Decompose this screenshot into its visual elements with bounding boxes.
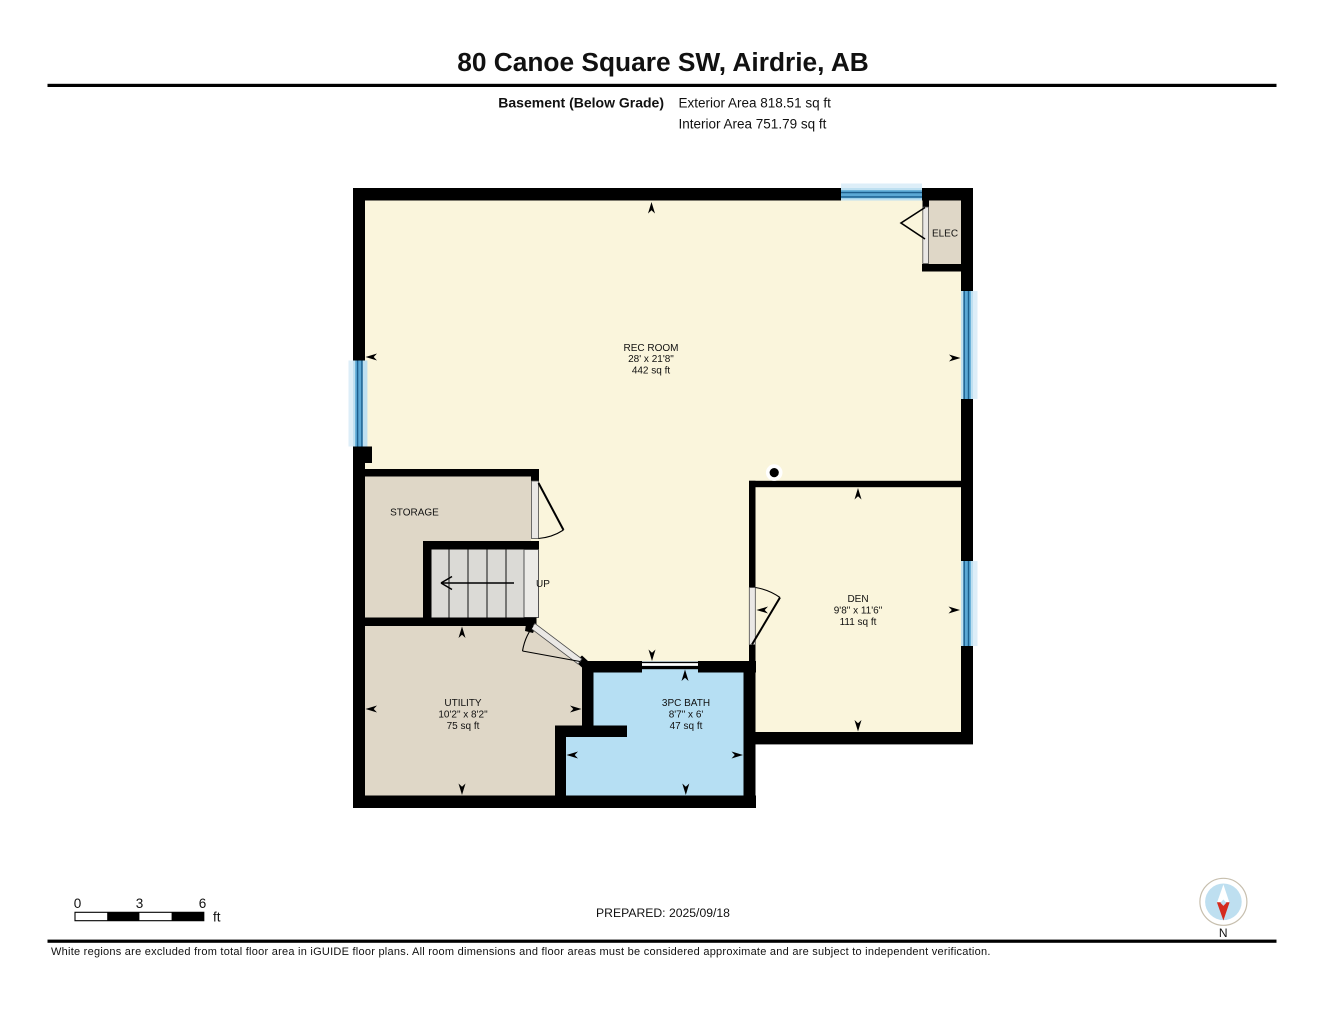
svg-text:ft: ft xyxy=(213,910,221,925)
svg-text:8'7" x 6': 8'7" x 6' xyxy=(669,709,704,720)
svg-text:Exterior Area 818.51 sq ft: Exterior Area 818.51 sq ft xyxy=(679,96,832,111)
svg-text:80 Canoe Square SW, Airdrie, A: 80 Canoe Square SW, Airdrie, AB xyxy=(457,47,869,77)
svg-text:UP: UP xyxy=(536,579,550,590)
svg-text:111 sq ft: 111 sq ft xyxy=(840,617,877,628)
svg-text:10'2" x 8'2": 10'2" x 8'2" xyxy=(438,709,488,720)
svg-text:DEN: DEN xyxy=(847,594,868,605)
svg-text:3: 3 xyxy=(136,896,144,911)
svg-text:UTILITY: UTILITY xyxy=(444,698,482,709)
svg-text:75 sq ft: 75 sq ft xyxy=(447,721,480,732)
svg-text:STORAGE: STORAGE xyxy=(390,508,439,519)
svg-text:442 sq ft: 442 sq ft xyxy=(632,366,671,377)
svg-text:47 sq ft: 47 sq ft xyxy=(670,721,703,732)
svg-text:REC ROOM: REC ROOM xyxy=(624,343,679,354)
svg-text:ELEC: ELEC xyxy=(932,229,958,240)
svg-text:N: N xyxy=(1219,926,1228,940)
svg-text:PREPARED: 2025/09/18: PREPARED: 2025/09/18 xyxy=(596,906,730,920)
svg-text:White regions are excluded fro: White regions are excluded from total fl… xyxy=(51,946,991,958)
svg-text:Interior Area 751.79 sq ft: Interior Area 751.79 sq ft xyxy=(679,117,827,132)
svg-text:Basement (Below Grade): Basement (Below Grade) xyxy=(498,95,664,111)
svg-text:9'8" x 11'6": 9'8" x 11'6" xyxy=(834,605,883,616)
svg-text:28' x 21'8": 28' x 21'8" xyxy=(628,354,674,365)
svg-text:6: 6 xyxy=(199,896,207,911)
svg-text:3PC BATH: 3PC BATH xyxy=(662,698,710,709)
svg-text:0: 0 xyxy=(74,896,82,911)
